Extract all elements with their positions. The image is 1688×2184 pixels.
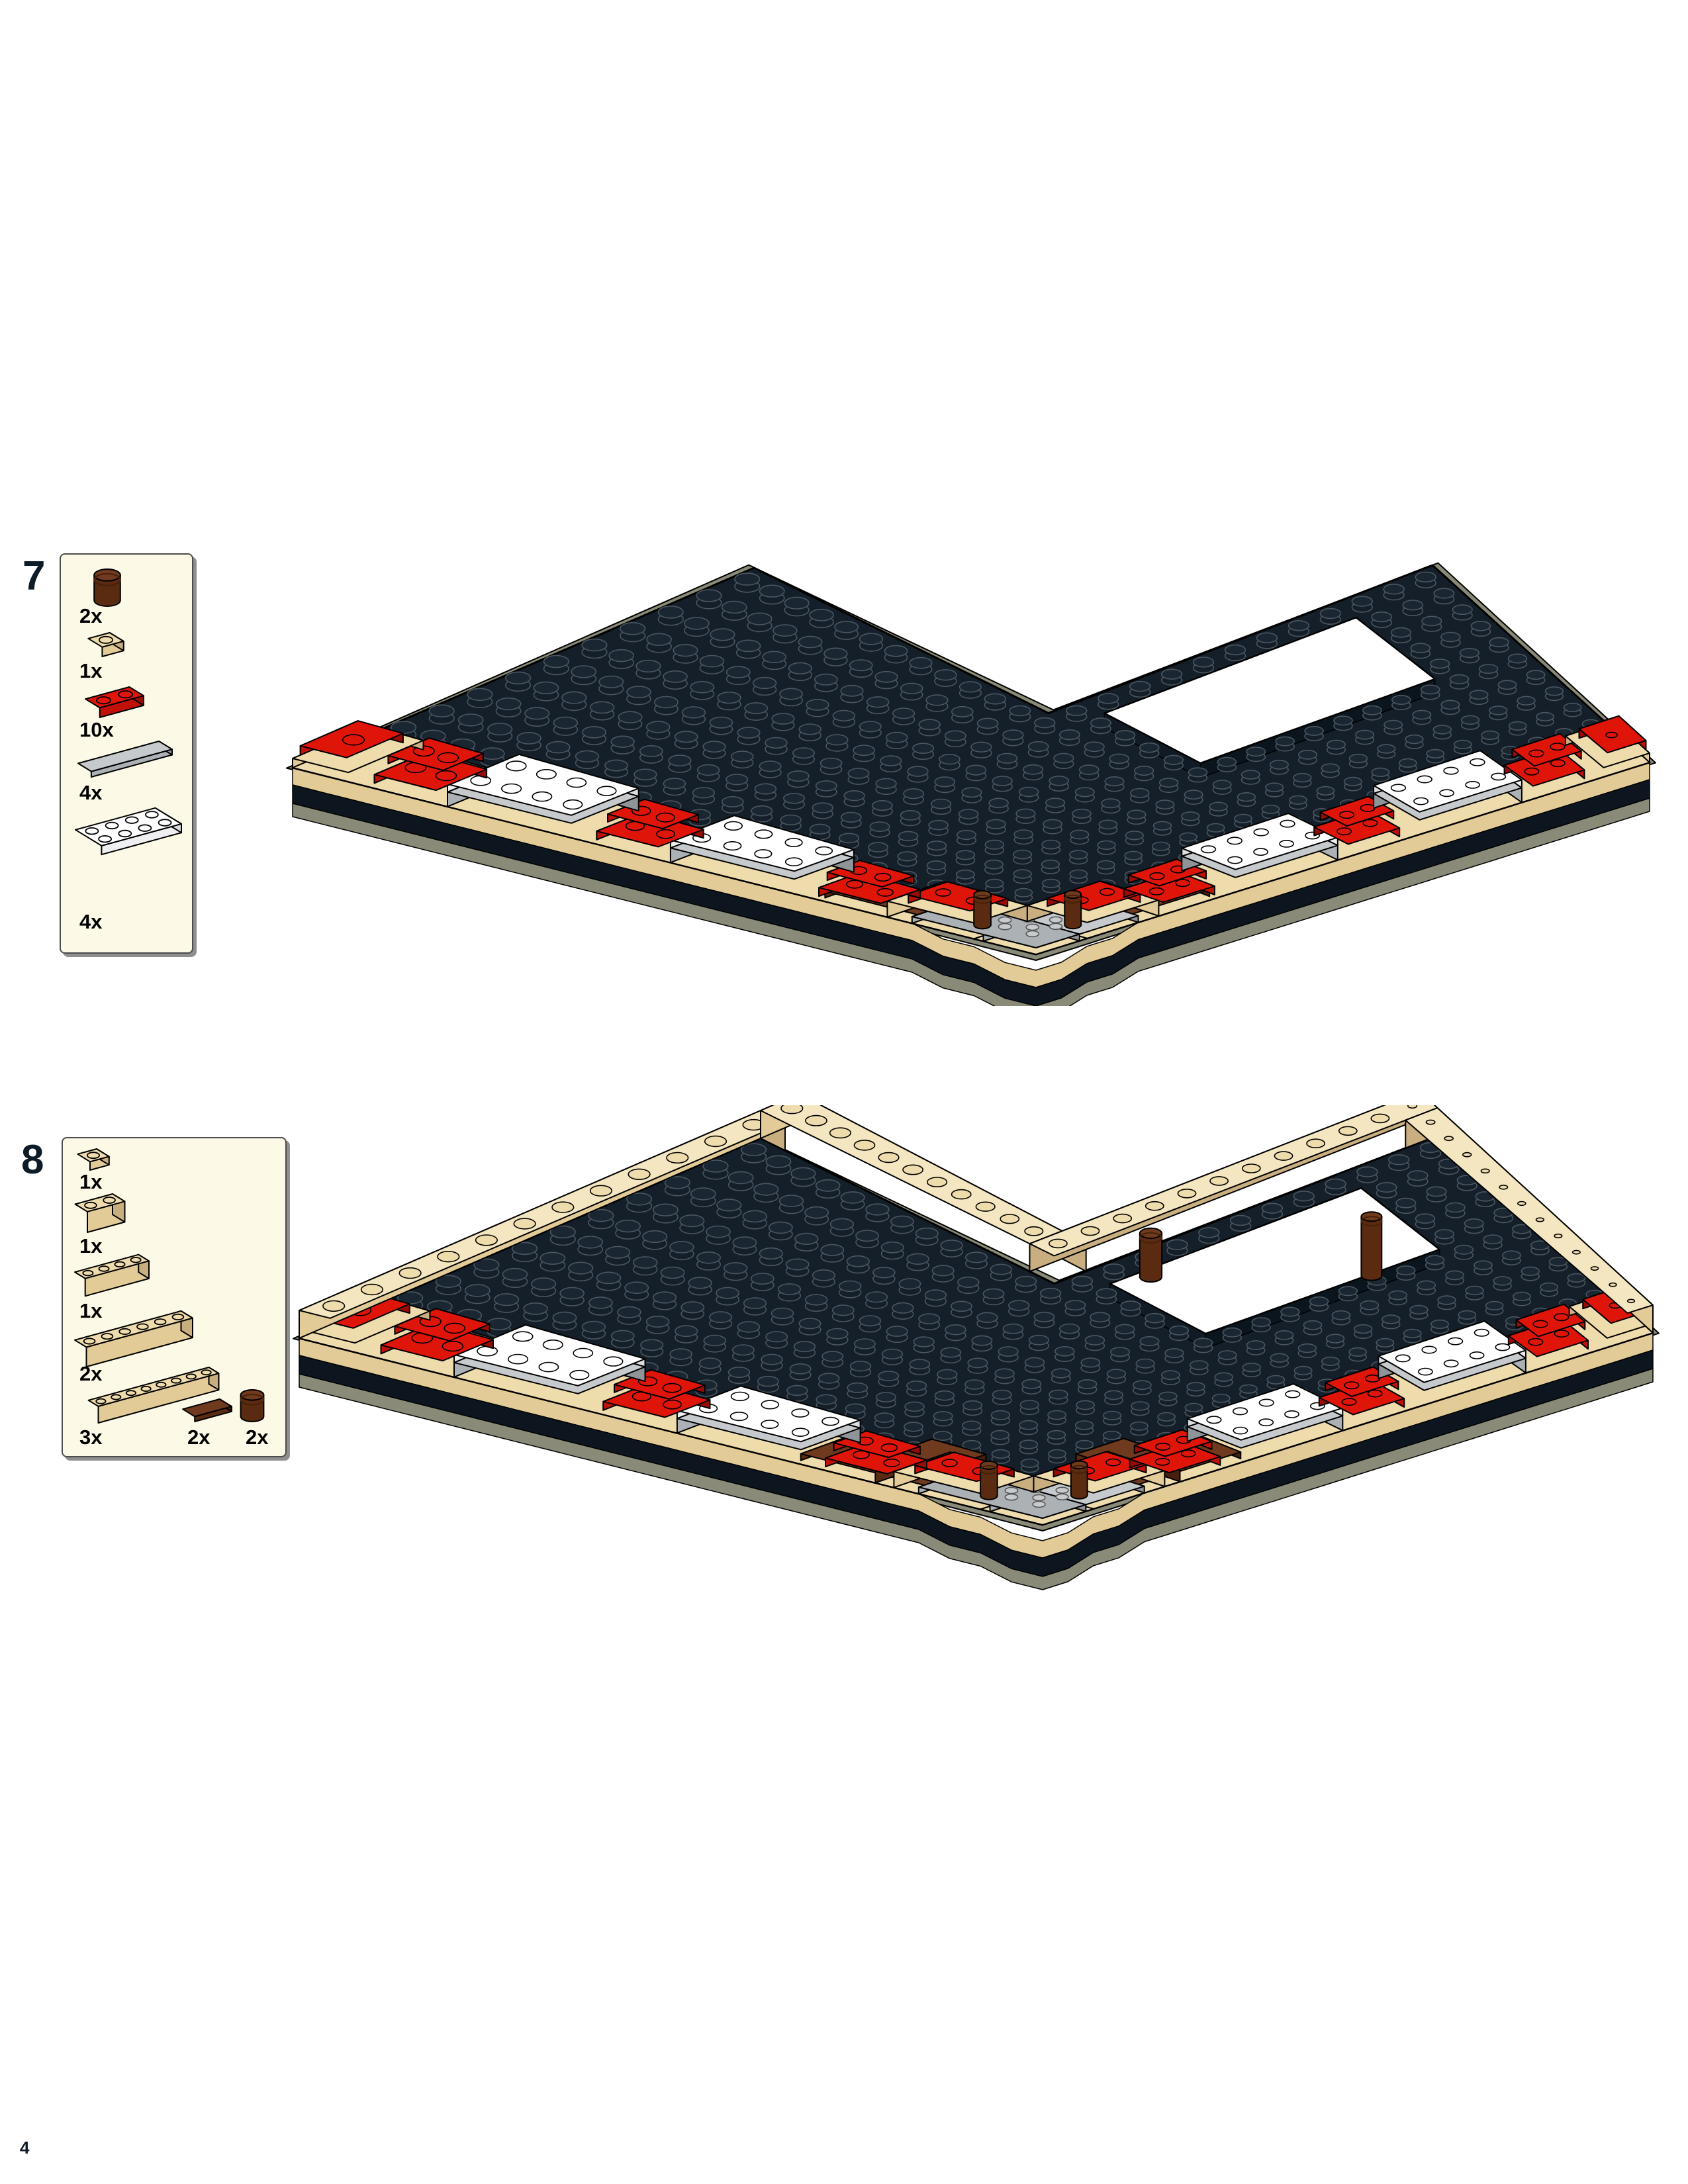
part-quantity: 10x	[79, 719, 114, 740]
part-quantity: 2x	[79, 606, 102, 626]
tile-1x2-brown-icon	[177, 1396, 238, 1428]
step-8-parts-callout: 1x1x1x2x3x2x2x	[62, 1137, 287, 1457]
page-number: 4	[20, 2138, 29, 2158]
plate-1x1-tan-icon	[81, 630, 131, 662]
step-7-parts-callout: 2x1x10x4x4x	[60, 553, 193, 954]
part-quantity: 3x	[79, 1427, 102, 1447]
step-7-number: 7	[23, 556, 45, 597]
plate-2x4-white-icon	[73, 794, 184, 872]
part-quantity: 1x	[79, 660, 102, 681]
part-quantity: 2x	[246, 1427, 268, 1447]
brick-1x2-tan-icon	[72, 1191, 128, 1238]
tile-1x4-light-gray-icon	[75, 739, 175, 783]
instruction-page: 7 2x1x10x4x4x 8 1x1x1x2x3x2x2x 4	[0, 0, 1688, 2184]
part-quantity: 4x	[79, 911, 102, 932]
part-quantity: 1x	[79, 1171, 102, 1192]
step-8-number: 8	[21, 1140, 44, 1181]
brick-1x1-round-brown-icon	[236, 1386, 268, 1428]
step-7-model-render	[271, 536, 1688, 1006]
step-8-model-render	[271, 1105, 1688, 1608]
brick-1x4-tan-icon	[72, 1250, 152, 1304]
part-quantity: 2x	[187, 1427, 210, 1447]
